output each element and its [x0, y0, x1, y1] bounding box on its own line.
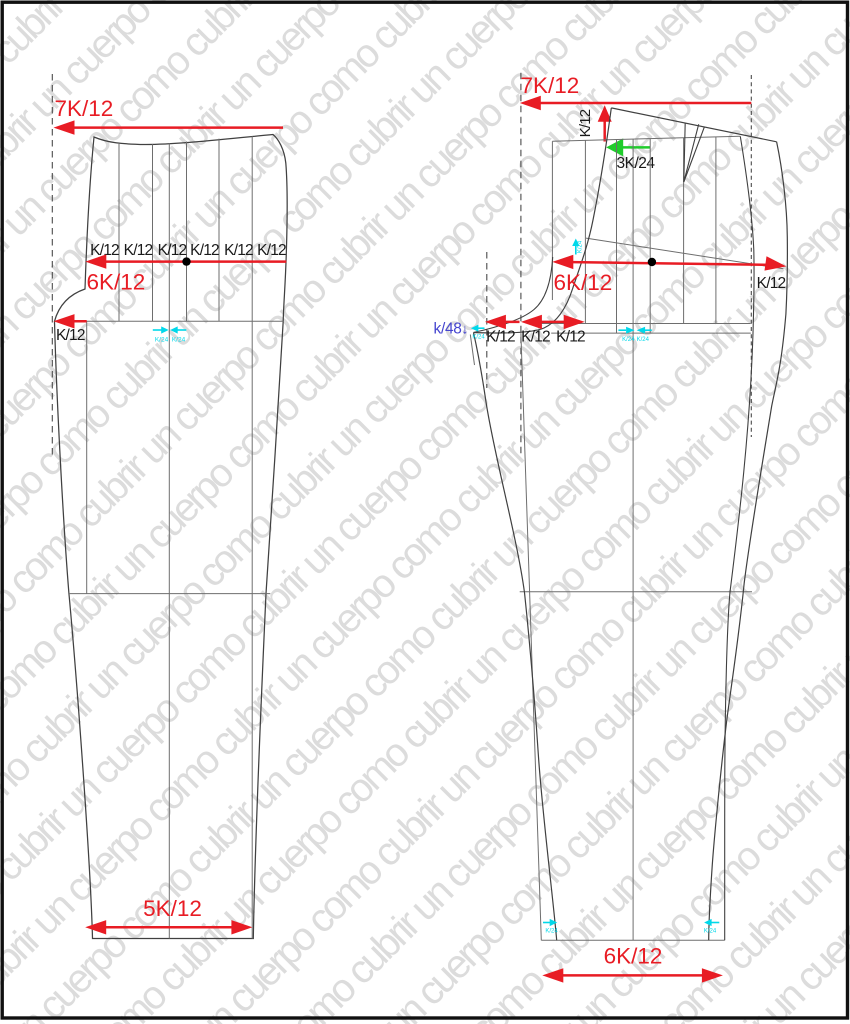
svg-text:K/12: K/12	[556, 329, 585, 346]
svg-text:K/12: K/12	[577, 109, 594, 137]
svg-text:6K/12: 6K/12	[87, 270, 146, 295]
svg-text:K/12: K/12	[521, 329, 550, 346]
svg-text:K/12: K/12	[56, 327, 85, 344]
svg-text:K/24: K/24	[172, 337, 186, 344]
svg-text:K/24: K/24	[637, 337, 650, 343]
svg-text:k/48: k/48	[434, 321, 462, 338]
svg-text:K/24: K/24	[704, 929, 717, 935]
svg-text:K/24: K/24	[472, 335, 485, 341]
svg-text:K/24: K/24	[578, 240, 584, 253]
svg-text:K/12: K/12	[124, 242, 153, 259]
svg-text:7K/12: 7K/12	[521, 73, 580, 98]
svg-text:5K/12: 5K/12	[143, 896, 202, 921]
svg-text:K/12: K/12	[190, 242, 219, 259]
svg-text:↓: ↓	[462, 321, 469, 337]
svg-text:K/24: K/24	[155, 337, 169, 344]
svg-text:K/12: K/12	[158, 242, 187, 259]
svg-text:K/12: K/12	[486, 329, 515, 346]
svg-text:K/24: K/24	[622, 337, 635, 343]
svg-text:K/12: K/12	[757, 275, 786, 292]
svg-text:K/12: K/12	[257, 242, 286, 259]
svg-text:3K/24: 3K/24	[617, 155, 656, 172]
svg-text:K/12: K/12	[224, 242, 253, 259]
svg-text:K/24: K/24	[545, 929, 558, 935]
svg-text:7K/12: 7K/12	[55, 96, 114, 121]
svg-text:6K/12: 6K/12	[554, 270, 613, 295]
svg-text:6K/12: 6K/12	[604, 944, 663, 969]
